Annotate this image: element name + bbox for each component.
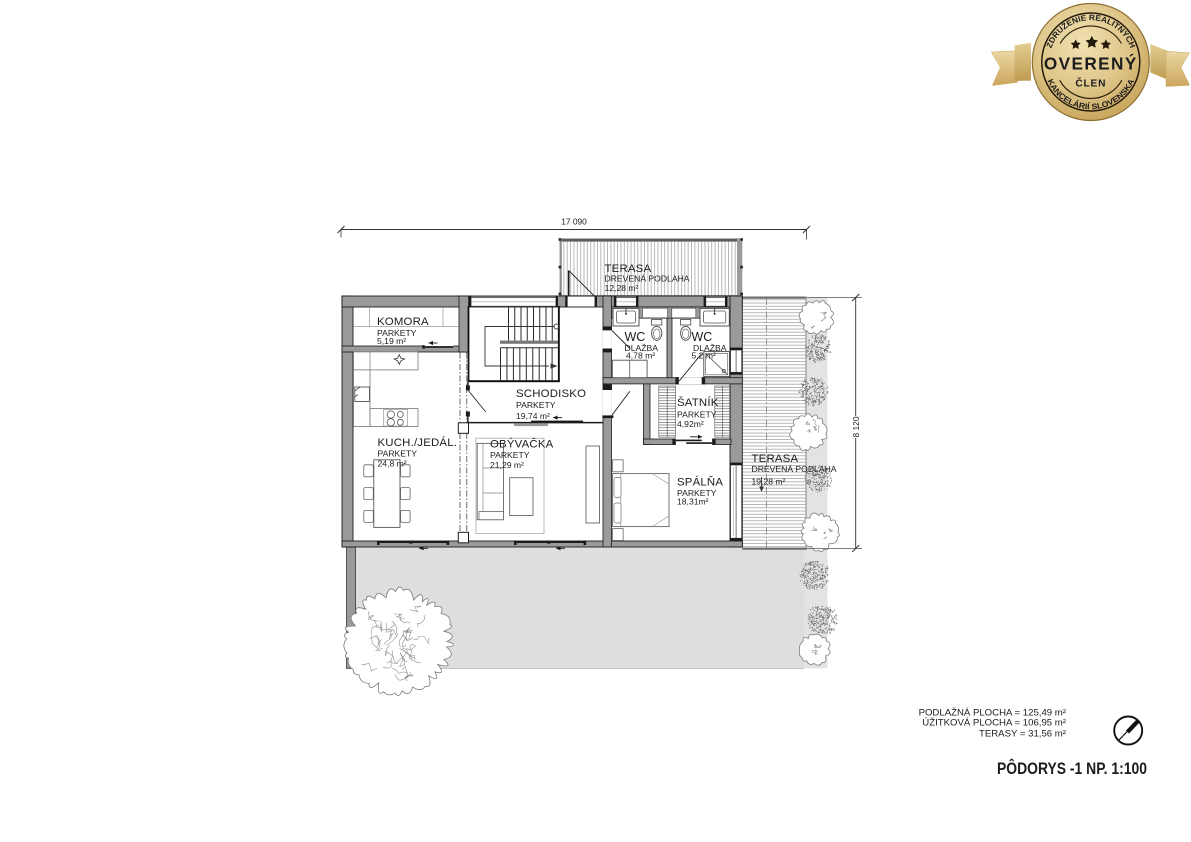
svg-text:24,8 m²: 24,8 m² [378, 459, 407, 469]
svg-text:17 090: 17 090 [561, 217, 587, 227]
svg-text:KOMORA: KOMORA [377, 316, 429, 328]
svg-text:4,92m²: 4,92m² [677, 419, 704, 429]
svg-text:KUCH./JEDÁL.: KUCH./JEDÁL. [378, 436, 458, 449]
svg-text:ČLEN: ČLEN [1075, 77, 1106, 90]
svg-text:OBÝVAČKA: OBÝVAČKA [490, 438, 554, 451]
svg-text:19,28 m²: 19,28 m² [752, 476, 786, 486]
svg-text:DREVENÁ PODLAHA: DREVENÁ PODLAHA [752, 464, 837, 474]
svg-text:5,2 m²: 5,2 m² [692, 351, 716, 361]
svg-text:TERASY = 31,56 m²: TERASY = 31,56 m² [979, 729, 1067, 740]
svg-text:19,74 m²: 19,74 m² [516, 411, 550, 421]
svg-text:PARKETY: PARKETY [378, 448, 418, 458]
svg-text:PARKETY: PARKETY [516, 400, 556, 410]
svg-text:SCHODISKO: SCHODISKO [516, 388, 586, 400]
svg-text:PARKETY: PARKETY [490, 450, 530, 460]
svg-text:ŠATNÍK: ŠATNÍK [677, 396, 719, 409]
svg-text:ÚŽITKOVÁ PLOCHA = 106,95 m²: ÚŽITKOVÁ PLOCHA = 106,95 m² [922, 718, 1066, 729]
svg-text:21,29 m²: 21,29 m² [490, 460, 524, 470]
svg-text:18,31m²: 18,31m² [677, 496, 709, 506]
svg-text:8 120: 8 120 [851, 416, 861, 437]
svg-text:OVERENÝ: OVERENÝ [1044, 53, 1138, 73]
svg-text:SPÁLŇA: SPÁLŇA [677, 476, 723, 489]
svg-text:4,78 m²: 4,78 m² [626, 351, 655, 361]
svg-text:12,28 m²: 12,28 m² [605, 283, 639, 293]
svg-text:5,19 m²: 5,19 m² [377, 336, 406, 346]
svg-text:PÔDORYS -1 NP. 1:100: PÔDORYS -1 NP. 1:100 [997, 759, 1147, 778]
